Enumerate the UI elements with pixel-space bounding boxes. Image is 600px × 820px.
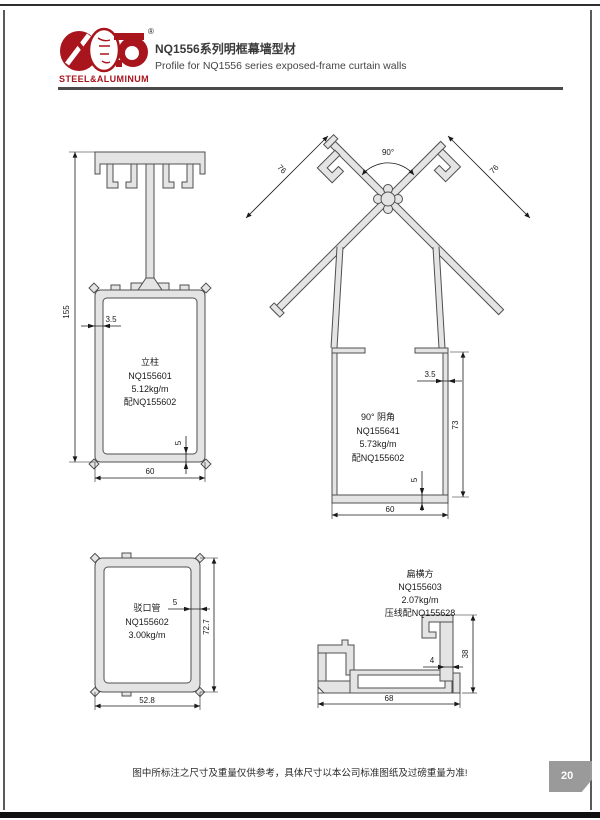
- profile-code: NQ155641: [356, 426, 400, 436]
- transom-shape: [318, 615, 460, 693]
- profile-weight: 5.73kg/m: [359, 439, 396, 449]
- dim-width-label: 68: [385, 694, 394, 703]
- dim-width-label: 60: [146, 467, 155, 476]
- dim-wall-label: 3.5: [424, 370, 436, 379]
- profile-label: 驳口管: [133, 602, 160, 613]
- profile-label: 90° 阴角: [361, 411, 395, 422]
- mullion-profile-drawing: 155 3.5 60 5 立柱 NQ155601 5.12kg/m 配NQ155…: [55, 140, 240, 495]
- profile-match: 压线配NQ155628: [385, 607, 456, 618]
- dim-height-label: 38: [461, 649, 470, 658]
- brand-logo-icon: ®: [58, 26, 154, 76]
- registered-mark: ®: [148, 27, 154, 36]
- dim-width-label: 52.8: [139, 696, 155, 705]
- profile-weight: 5.12kg/m: [131, 384, 168, 394]
- dim-arm-right-label: 76: [488, 163, 501, 176]
- dim-wall-label: 5: [173, 598, 178, 607]
- dim-height-label: 155: [62, 305, 71, 319]
- profile-label: 扁横方: [406, 568, 433, 579]
- dim-width-label: 60: [386, 505, 395, 514]
- profile-weight: 2.07kg/m: [401, 595, 438, 605]
- dim-height-label: 73: [451, 420, 460, 429]
- page-border-right: [590, 10, 592, 810]
- profile-code: NQ155602: [125, 617, 169, 627]
- page-number: 20: [561, 770, 573, 782]
- corner-profile-drawing: 90° 76 76 3.5 73 60 5 90° 阴角 NQ155641 5.…: [240, 135, 532, 533]
- profile-match: 配NQ155602: [124, 397, 177, 407]
- profile-match: 配NQ155602: [352, 453, 405, 463]
- dim-wall-label: 4: [430, 656, 435, 665]
- header-divider: [58, 87, 563, 90]
- dim-base-label: 5: [410, 477, 419, 482]
- page-border-top: [0, 4, 600, 6]
- profile-code: NQ155601: [128, 371, 172, 381]
- dim-base-label: 5: [174, 440, 183, 445]
- brand-name: STEEL&ALUMINUM: [52, 74, 156, 84]
- transom-title-block: 扁横方 NQ155603 2.07kg/m 压线配NQ155628: [385, 568, 456, 618]
- corner-title-block: 90° 阴角 NQ155641 5.73kg/m 配NQ155602: [352, 411, 405, 463]
- logo-emblem: [60, 29, 148, 71]
- page-number-badge: 20: [549, 761, 592, 792]
- spigot-profile-drawing: 5 72.7 52.8 驳口管 NQ155602 3.00kg/m: [78, 548, 228, 716]
- transom-profile-drawing: 68 38 4 扁横方 NQ155603 2.07kg/m 压线配NQ15562…: [305, 560, 517, 712]
- footer-disclaimer: 图中所标注之尺寸及重量仅供参考，具体尺寸以本公司标准图纸及过磅重量为准!: [0, 765, 600, 779]
- mullion-shape: [89, 152, 211, 469]
- dim-angle-label: 90°: [382, 148, 394, 157]
- page-border-left: [3, 10, 5, 810]
- dim-arm-left-label: 76: [275, 163, 288, 176]
- profile-label: 立柱: [141, 356, 159, 367]
- dim-wall-label: 3.5: [105, 315, 117, 324]
- page-title-zh: NQ1556系列明框幕墙型材: [155, 40, 296, 57]
- dim-height-label: 72.7: [202, 619, 211, 635]
- profile-code: NQ155603: [398, 582, 442, 592]
- page-border-bottom: [0, 812, 600, 818]
- page-title-en: Profile for NQ1556 series exposed-frame …: [155, 60, 407, 72]
- profile-weight: 3.00kg/m: [128, 630, 165, 640]
